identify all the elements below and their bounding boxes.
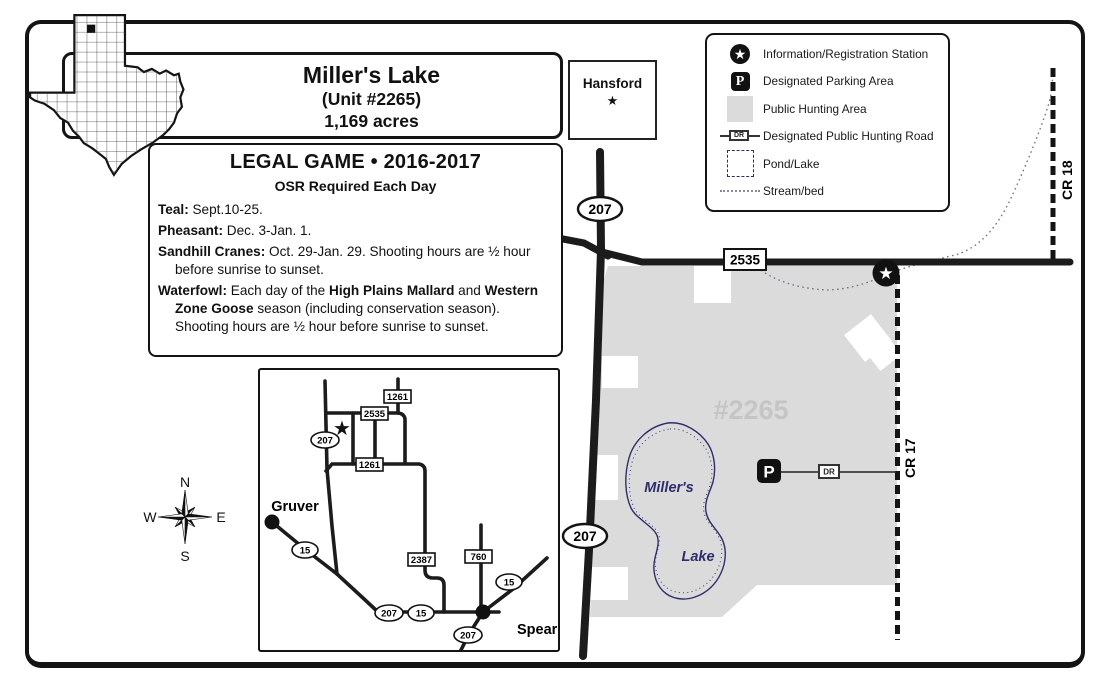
public-hunting-area	[590, 266, 897, 617]
fm-2535-shield: 2535	[724, 249, 766, 270]
texas-county-map	[24, 12, 188, 178]
legal-game-box: LEGAL GAME • 2016-2017 OSR Required Each…	[148, 143, 563, 357]
inset-road-map: ★ Gruver Spearman 207 15 207 15 15	[260, 370, 558, 650]
legend-row-parking: P Designated Parking Area	[717, 68, 948, 96]
compass-rose: N E S W	[139, 472, 231, 568]
svg-text:15: 15	[504, 578, 515, 589]
dr-marker-label: DR	[823, 468, 835, 477]
compass-north-label: N	[180, 474, 190, 490]
compass-south-label: S	[180, 548, 189, 564]
designated-road-symbol: DR	[720, 130, 760, 142]
registration-star-icon: ★	[730, 44, 750, 64]
hwy-207-shield-bottom: 207	[563, 524, 607, 548]
legend-label: Designated Public Hunting Road	[763, 129, 934, 143]
spearman-town-dot	[476, 605, 491, 620]
parking-icon: P	[731, 72, 750, 91]
parking-area-icon: P	[757, 459, 781, 483]
unit-subtitle: (Unit #2265)	[183, 88, 560, 110]
gruver-town-dot	[265, 515, 280, 530]
legend-label: Stream/bed	[763, 184, 824, 198]
county-star-icon: ★	[570, 91, 655, 111]
spearman-label: Spearman	[517, 622, 558, 638]
legend-label: Designated Parking Area	[763, 74, 894, 88]
legend-row-hunting-area: Public Hunting Area	[717, 95, 948, 123]
legend-label: Public Hunting Area	[763, 102, 867, 116]
legend-row-designated-road: DR Designated Public Hunting Road	[717, 123, 948, 151]
legal-game-item: Teal: Sept.10-25.	[158, 201, 553, 219]
pond-swatch	[727, 150, 754, 177]
svg-text:2535: 2535	[364, 409, 386, 420]
svg-text:★: ★	[878, 264, 893, 283]
dr-box-icon: DR	[729, 130, 749, 141]
legend-row-pond: Pond/Lake	[717, 150, 948, 178]
legend-row-registration: ★ Information/Registration Station	[717, 40, 948, 68]
gruver-label: Gruver	[271, 499, 319, 515]
registration-station-icon: ★	[873, 260, 900, 287]
legal-game-subtitle: OSR Required Each Day	[158, 178, 553, 194]
svg-text:1261: 1261	[387, 392, 409, 403]
hunting-area-swatch	[727, 96, 753, 122]
svg-text:15: 15	[300, 546, 311, 557]
cr17-label: CR 17	[902, 438, 918, 478]
map-page: #2265 DR Miller's Lake 207 207	[0, 0, 1109, 695]
svg-text:2535: 2535	[730, 253, 761, 268]
county-name: Hansford	[570, 76, 655, 91]
svg-text:2387: 2387	[411, 555, 432, 566]
county-grid	[30, 15, 183, 175]
stream-symbol	[720, 190, 760, 192]
svg-text:207: 207	[317, 436, 333, 447]
svg-text:760: 760	[471, 552, 487, 563]
county-locator-box: Hansford ★	[568, 60, 657, 140]
legend-label: Information/Registration Station	[763, 47, 928, 61]
svg-text:15: 15	[416, 609, 427, 620]
legal-game-item: Sandhill Cranes: Oct. 29-Jan. 29. Shooti…	[158, 243, 553, 279]
svg-text:207: 207	[460, 631, 476, 642]
unit-number-label: #2265	[713, 395, 788, 425]
compass-east-label: E	[216, 509, 225, 525]
svg-text:207: 207	[573, 528, 597, 544]
map-title: Miller's Lake	[183, 62, 560, 88]
hansford-county-marker	[87, 25, 95, 33]
legal-game-item: Waterfowl: Each day of the High Plains M…	[158, 282, 553, 336]
lake-name-line1: Miller's	[644, 480, 693, 496]
legend-row-stream: Stream/bed	[717, 178, 948, 206]
road-2535	[602, 252, 1070, 262]
svg-text:1261: 1261	[359, 460, 381, 471]
svg-text:207: 207	[381, 609, 397, 620]
map-legend: ★ Information/Registration Station P Des…	[705, 33, 950, 212]
acreage-subtitle: 1,169 acres	[183, 110, 560, 132]
svg-text:P: P	[763, 463, 774, 482]
legal-game-title: LEGAL GAME • 2016-2017	[158, 151, 553, 174]
lake-name-line2: Lake	[681, 549, 714, 565]
cr18-label: CR 18	[1059, 160, 1075, 200]
inset-road-map-box: ★ Gruver Spearman 207 15 207 15 15	[258, 368, 560, 652]
svg-text:207: 207	[588, 201, 612, 217]
legend-label: Pond/Lake	[763, 157, 819, 171]
legal-game-list: Teal: Sept.10-25.Pheasant: Dec. 3-Jan. 1…	[158, 201, 553, 337]
hwy-207-shield-top: 207	[578, 197, 622, 221]
compass-west-label: W	[143, 509, 157, 525]
legal-game-item: Pheasant: Dec. 3-Jan. 1.	[158, 222, 553, 240]
